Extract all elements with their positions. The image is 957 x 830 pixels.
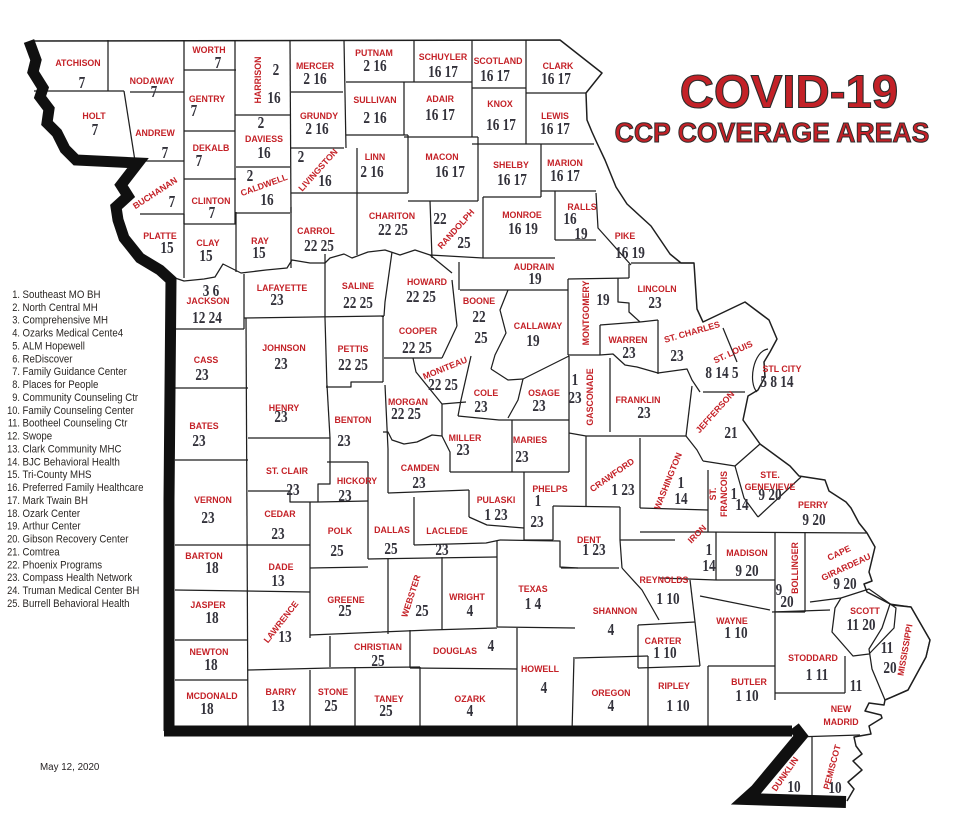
svg-text:COLE: COLE xyxy=(474,388,499,398)
svg-text:18.: 18. xyxy=(7,508,20,520)
svg-text:HICKORY: HICKORY xyxy=(337,476,377,486)
svg-text:SCOTT: SCOTT xyxy=(850,606,880,616)
svg-text:COVID-19: COVID-19 xyxy=(680,66,899,117)
svg-text:1 10: 1 10 xyxy=(656,590,680,609)
svg-text:Clark Community MHC: Clark Community MHC xyxy=(23,444,122,456)
svg-text:DOUGLAS: DOUGLAS xyxy=(433,646,477,656)
svg-text:11.: 11. xyxy=(8,418,20,430)
svg-text:13: 13 xyxy=(271,697,285,716)
svg-text:11: 11 xyxy=(881,639,894,658)
svg-text:LACLEDE: LACLEDE xyxy=(426,526,468,536)
svg-text:23: 23 xyxy=(515,448,529,467)
svg-text:23: 23 xyxy=(195,366,209,385)
svg-text:5.: 5. xyxy=(12,341,20,353)
svg-text:22 25: 22 25 xyxy=(343,294,373,313)
svg-text:2: 2 xyxy=(273,61,280,80)
svg-text:16 17: 16 17 xyxy=(486,116,516,135)
svg-text:JOHNSON: JOHNSON xyxy=(262,343,306,353)
svg-text:1 10: 1 10 xyxy=(724,624,748,643)
svg-text:PERRY: PERRY xyxy=(798,500,828,510)
svg-text:Ozark Center: Ozark Center xyxy=(23,508,81,520)
svg-text:23: 23 xyxy=(274,355,288,374)
svg-text:16.: 16. xyxy=(7,482,20,494)
svg-text:HARRISON: HARRISON xyxy=(253,57,263,104)
svg-text:25: 25 xyxy=(384,540,398,559)
svg-text:MARIES: MARIES xyxy=(513,435,547,445)
svg-text:22 25: 22 25 xyxy=(406,288,436,307)
svg-text:DALLAS: DALLAS xyxy=(374,525,410,535)
svg-text:23: 23 xyxy=(530,513,544,532)
svg-text:7.: 7. xyxy=(12,367,20,379)
svg-text:10: 10 xyxy=(828,779,842,798)
svg-text:CHARITON: CHARITON xyxy=(369,211,415,221)
svg-text:Community Counseling Ctr: Community Counseling Ctr xyxy=(23,393,139,405)
svg-text:7: 7 xyxy=(169,193,176,212)
svg-text:2: 2 xyxy=(247,167,254,186)
svg-text:ADAIR: ADAIR xyxy=(426,94,455,104)
svg-text:2: 2 xyxy=(258,114,265,133)
svg-text:20: 20 xyxy=(883,659,897,678)
svg-text:HOWARD: HOWARD xyxy=(407,277,447,287)
svg-text:11: 11 xyxy=(850,677,863,696)
svg-text:KNOX: KNOX xyxy=(487,99,513,109)
svg-text:Truman Medical Center BH: Truman Medical Center BH xyxy=(23,586,140,598)
svg-text:22 25: 22 25 xyxy=(304,237,334,256)
svg-text:12 24: 12 24 xyxy=(192,309,222,328)
svg-text:DADE: DADE xyxy=(269,562,294,572)
svg-text:PETTIS: PETTIS xyxy=(338,344,369,354)
svg-text:Burrell Behavioral Health: Burrell Behavioral Health xyxy=(23,598,130,610)
svg-text:19.: 19. xyxy=(7,521,20,533)
svg-text:MADISON: MADISON xyxy=(726,548,768,558)
svg-text:CASS: CASS xyxy=(194,355,219,365)
svg-text:25: 25 xyxy=(415,602,429,621)
svg-text:1 10: 1 10 xyxy=(666,697,690,716)
svg-text:23: 23 xyxy=(435,541,449,560)
svg-text:9 20: 9 20 xyxy=(758,486,782,505)
svg-text:STE.: STE. xyxy=(760,470,780,480)
svg-text:23: 23 xyxy=(337,432,351,451)
svg-text:23: 23 xyxy=(271,525,285,544)
svg-text:LINCOLN: LINCOLN xyxy=(637,284,676,294)
svg-text:8.: 8. xyxy=(12,379,20,391)
svg-text:PULASKI: PULASKI xyxy=(477,495,516,505)
svg-text:14.: 14. xyxy=(7,457,20,469)
svg-text:23: 23 xyxy=(456,441,470,460)
svg-text:7: 7 xyxy=(92,121,99,140)
svg-text:RIPLEY: RIPLEY xyxy=(658,681,690,691)
svg-text:1.: 1. xyxy=(12,289,20,301)
svg-text:Places for People: Places for People xyxy=(23,380,99,392)
svg-text:2 16: 2 16 xyxy=(305,120,329,139)
svg-text:23: 23 xyxy=(286,481,300,500)
svg-text:BARRY: BARRY xyxy=(266,687,297,697)
svg-text:22 25: 22 25 xyxy=(338,356,368,375)
svg-text:23: 23 xyxy=(412,474,426,493)
svg-text:Comtrea: Comtrea xyxy=(23,547,60,559)
svg-text:19: 19 xyxy=(528,270,542,289)
svg-text:ATCHISON: ATCHISON xyxy=(55,58,100,68)
svg-text:CEDAR: CEDAR xyxy=(264,509,296,519)
svg-text:NEW: NEW xyxy=(831,704,852,714)
svg-text:SCOTLAND: SCOTLAND xyxy=(474,56,523,66)
svg-text:4: 4 xyxy=(541,679,548,698)
svg-text:25: 25 xyxy=(330,542,344,561)
svg-text:16 17: 16 17 xyxy=(541,70,571,89)
svg-text:North Central MH: North Central MH xyxy=(23,302,98,314)
svg-text:25.: 25. xyxy=(7,598,20,610)
svg-text:CAMDEN: CAMDEN xyxy=(401,463,440,473)
svg-text:25: 25 xyxy=(379,702,393,721)
svg-text:17.: 17. xyxy=(7,495,20,507)
svg-text:1 4: 1 4 xyxy=(525,595,542,614)
svg-text:Preferred Family Healthcare: Preferred Family Healthcare xyxy=(23,483,144,495)
svg-text:18: 18 xyxy=(200,700,214,719)
svg-text:3 6: 3 6 xyxy=(203,282,220,301)
svg-text:16: 16 xyxy=(267,89,281,108)
svg-text:16 19: 16 19 xyxy=(615,244,645,263)
svg-text:Southeast MO BH: Southeast MO BH xyxy=(23,290,101,302)
svg-text:16: 16 xyxy=(257,144,271,163)
svg-text:Arthur Center: Arthur Center xyxy=(23,521,82,533)
svg-text:ReDiscover: ReDiscover xyxy=(23,354,74,366)
svg-text:BUTLER: BUTLER xyxy=(731,677,767,687)
svg-text:2 16: 2 16 xyxy=(360,163,384,182)
svg-text:16 17: 16 17 xyxy=(425,106,455,125)
svg-text:STODDARD: STODDARD xyxy=(788,653,838,663)
svg-text:Swope: Swope xyxy=(23,431,53,443)
svg-text:4: 4 xyxy=(467,702,474,721)
svg-text:4: 4 xyxy=(608,697,615,716)
svg-text:25: 25 xyxy=(474,329,488,348)
svg-text:FRANCOIS: FRANCOIS xyxy=(719,471,729,517)
svg-text:CARROL: CARROL xyxy=(297,226,335,236)
svg-text:19: 19 xyxy=(596,291,610,310)
svg-text:18: 18 xyxy=(204,656,218,675)
svg-text:ST.: ST. xyxy=(708,488,718,501)
svg-text:1: 1 xyxy=(572,371,579,390)
svg-text:7: 7 xyxy=(151,83,158,102)
svg-text:9 20: 9 20 xyxy=(833,575,857,594)
svg-text:23: 23 xyxy=(568,389,582,408)
svg-text:9 20: 9 20 xyxy=(802,511,826,530)
svg-text:23: 23 xyxy=(192,432,206,451)
svg-text:1 23: 1 23 xyxy=(611,481,635,500)
svg-text:Bootheel Counseling Ctr: Bootheel Counseling Ctr xyxy=(23,418,128,430)
svg-text:BJC Behavioral Health: BJC Behavioral Health xyxy=(23,457,121,469)
svg-text:MONROE: MONROE xyxy=(502,210,542,220)
svg-text:16: 16 xyxy=(260,191,274,210)
svg-text:25: 25 xyxy=(338,602,352,621)
svg-text:3.: 3. xyxy=(12,315,20,327)
svg-text:12.: 12. xyxy=(7,431,20,443)
svg-text:23: 23 xyxy=(637,404,651,423)
svg-text:1 23: 1 23 xyxy=(484,506,508,525)
svg-text:15: 15 xyxy=(252,244,266,263)
svg-text:15.: 15. xyxy=(7,470,20,482)
svg-text:Tri-County MHS: Tri-County MHS xyxy=(23,470,92,482)
svg-text:16 17: 16 17 xyxy=(428,63,458,82)
svg-text:Family Guidance Center: Family Guidance Center xyxy=(23,367,128,379)
svg-text:2 16: 2 16 xyxy=(363,109,387,128)
svg-text:21.: 21. xyxy=(7,547,20,559)
svg-text:16 17: 16 17 xyxy=(540,120,570,139)
svg-text:STONE: STONE xyxy=(318,687,348,697)
svg-text:21: 21 xyxy=(724,424,737,443)
svg-text:6.: 6. xyxy=(12,354,20,366)
svg-text:15: 15 xyxy=(160,239,174,258)
svg-text:VERNON: VERNON xyxy=(194,495,232,505)
svg-text:BENTON: BENTON xyxy=(335,415,372,425)
svg-text:2.: 2. xyxy=(12,302,20,314)
svg-text:16 19: 16 19 xyxy=(508,220,538,239)
svg-text:14: 14 xyxy=(674,490,688,509)
svg-text:CCP COVERAGE AREAS: CCP COVERAGE AREAS xyxy=(615,116,930,148)
svg-text:23: 23 xyxy=(201,509,215,528)
svg-text:15: 15 xyxy=(199,247,213,266)
svg-text:May 12, 2020: May 12, 2020 xyxy=(40,762,100,773)
svg-text:23: 23 xyxy=(670,347,684,366)
svg-text:10: 10 xyxy=(787,778,801,797)
svg-text:23: 23 xyxy=(274,408,288,427)
svg-text:25: 25 xyxy=(457,234,471,253)
svg-text:1: 1 xyxy=(535,492,542,511)
svg-text:TEXAS: TEXAS xyxy=(518,584,547,594)
svg-text:13.: 13. xyxy=(7,444,20,456)
svg-text:Phoenix Programs: Phoenix Programs xyxy=(23,560,103,572)
svg-text:16 17: 16 17 xyxy=(550,167,580,186)
svg-text:1 11: 1 11 xyxy=(806,666,828,685)
svg-text:Ozarks Medical Cente4: Ozarks Medical Cente4 xyxy=(23,328,124,340)
svg-text:2 16: 2 16 xyxy=(363,57,387,76)
svg-text:BATES: BATES xyxy=(189,421,218,431)
svg-text:BOLLINGER: BOLLINGER xyxy=(790,541,800,593)
svg-text:24.: 24. xyxy=(7,585,20,597)
svg-text:MADRID: MADRID xyxy=(823,717,858,727)
svg-text:SULLIVAN: SULLIVAN xyxy=(353,95,396,105)
svg-text:4: 4 xyxy=(467,602,474,621)
svg-text:SCHUYLER: SCHUYLER xyxy=(419,52,468,62)
svg-text:23: 23 xyxy=(338,487,352,506)
svg-text:SHANNON: SHANNON xyxy=(593,606,637,616)
svg-text:23: 23 xyxy=(270,291,284,310)
svg-text:1 10: 1 10 xyxy=(735,687,759,706)
svg-text:7: 7 xyxy=(191,102,198,121)
svg-text:4: 4 xyxy=(608,621,615,640)
svg-text:PIKE: PIKE xyxy=(615,231,636,241)
svg-text:9 20: 9 20 xyxy=(735,562,759,581)
svg-text:20.: 20. xyxy=(7,534,20,546)
svg-text:MACON: MACON xyxy=(425,152,458,162)
svg-text:LINN: LINN xyxy=(365,152,386,162)
svg-text:22 25: 22 25 xyxy=(391,405,421,424)
svg-text:25: 25 xyxy=(371,652,385,671)
svg-text:16 17: 16 17 xyxy=(480,67,510,86)
svg-text:7: 7 xyxy=(209,204,216,223)
svg-text:GASCONADE: GASCONADE xyxy=(585,368,595,425)
svg-text:14: 14 xyxy=(702,557,716,576)
svg-text:19: 19 xyxy=(526,332,540,351)
svg-text:5 8 14: 5 8 14 xyxy=(760,373,793,392)
svg-text:2: 2 xyxy=(298,148,305,167)
svg-text:Comprehensive MH: Comprehensive MH xyxy=(23,315,109,327)
svg-text:BOONE: BOONE xyxy=(463,296,495,306)
svg-text:CHRISTIAN: CHRISTIAN xyxy=(354,642,402,652)
svg-text:18: 18 xyxy=(205,559,219,578)
svg-text:ALM Hopewell: ALM Hopewell xyxy=(23,341,85,353)
svg-text:10.: 10. xyxy=(7,405,20,417)
svg-text:23: 23 xyxy=(474,398,488,417)
svg-text:7: 7 xyxy=(79,74,86,93)
svg-text:7: 7 xyxy=(162,144,169,163)
svg-text:25: 25 xyxy=(324,697,338,716)
svg-text:1 10: 1 10 xyxy=(653,644,677,663)
svg-text:8 14 5: 8 14 5 xyxy=(705,364,738,383)
svg-text:Compass Health Network: Compass Health Network xyxy=(23,573,133,585)
svg-text:REYNOLDS: REYNOLDS xyxy=(640,575,689,585)
svg-text:23: 23 xyxy=(648,294,662,313)
svg-text:DAVIESS: DAVIESS xyxy=(245,134,283,144)
svg-text:Family Counseling Center: Family Counseling Center xyxy=(23,405,135,417)
svg-text:7: 7 xyxy=(196,152,203,171)
svg-text:13: 13 xyxy=(271,572,285,591)
svg-text:9.: 9. xyxy=(12,392,20,404)
svg-text:1 23: 1 23 xyxy=(582,541,606,560)
svg-text:SHELBY: SHELBY xyxy=(493,160,529,170)
svg-text:22 25: 22 25 xyxy=(402,339,432,358)
svg-text:WRIGHT: WRIGHT xyxy=(449,592,485,602)
svg-text:13: 13 xyxy=(278,628,292,647)
svg-text:23: 23 xyxy=(622,344,636,363)
svg-text:HOLT: HOLT xyxy=(82,111,106,121)
svg-text:16: 16 xyxy=(318,172,332,191)
svg-text:MONTGOMERY: MONTGOMERY xyxy=(581,281,591,346)
svg-text:19: 19 xyxy=(574,225,588,244)
svg-text:Gibson Recovery Center: Gibson Recovery Center xyxy=(23,534,129,546)
svg-text:18: 18 xyxy=(205,609,219,628)
svg-text:POLK: POLK xyxy=(328,526,353,536)
svg-text:22: 22 xyxy=(433,210,446,229)
svg-text:22.: 22. xyxy=(7,560,20,572)
svg-text:HOWELL: HOWELL xyxy=(521,664,560,674)
svg-text:SALINE: SALINE xyxy=(342,281,374,291)
svg-text:22 25: 22 25 xyxy=(378,221,408,240)
svg-text:ST. CLAIR: ST. CLAIR xyxy=(266,466,309,476)
svg-text:Mark Twain BH: Mark Twain BH xyxy=(23,495,88,507)
svg-text:11 20: 11 20 xyxy=(846,616,875,635)
svg-text:14: 14 xyxy=(735,496,749,515)
svg-text:22 25: 22 25 xyxy=(428,376,458,395)
svg-text:CALLAWAY: CALLAWAY xyxy=(514,321,563,331)
svg-text:16 17: 16 17 xyxy=(435,163,465,182)
svg-text:22: 22 xyxy=(472,308,485,327)
svg-text:4: 4 xyxy=(488,637,495,656)
svg-text:ANDREW: ANDREW xyxy=(135,128,175,138)
svg-text:16 17: 16 17 xyxy=(497,171,527,190)
svg-text:2 16: 2 16 xyxy=(303,70,327,89)
svg-text:COOPER: COOPER xyxy=(399,326,438,336)
svg-text:23.: 23. xyxy=(7,572,20,584)
svg-text:7: 7 xyxy=(215,54,222,73)
svg-text:4.: 4. xyxy=(12,328,20,340)
svg-text:23: 23 xyxy=(532,397,546,416)
svg-text:20: 20 xyxy=(780,593,794,612)
